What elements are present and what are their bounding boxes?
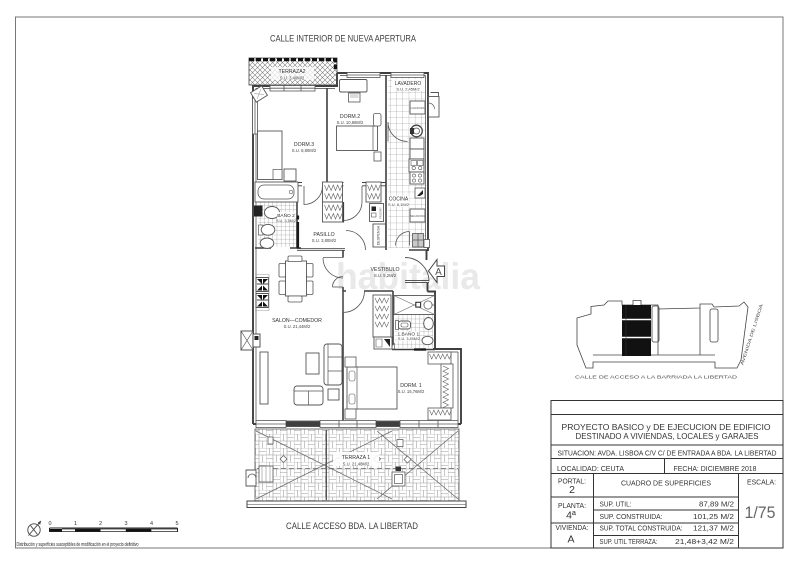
svg-text:AVENIDA DE LISBOA: AVENIDA DE LISBOA — [739, 303, 764, 366]
svg-text:S.U. 6,1M/2: S.U. 6,1M/2 — [388, 202, 410, 207]
svg-text:5: 5 — [175, 521, 178, 527]
svg-text:1/75: 1/75 — [745, 504, 776, 522]
svg-text:SUP. UTIL TERRAZA:: SUP. UTIL TERRAZA: — [600, 537, 658, 546]
svg-text:ESCALA:: ESCALA: — [747, 478, 776, 487]
svg-text:CALLE DE ACCESO A LA BARR: CALLE DE ACCESO A LA BARRIADA LA LIBERTA… — [575, 375, 737, 380]
svg-text:S.U. 21,44M/2: S.U. 21,44M/2 — [284, 324, 311, 329]
svg-text:S.U. 8,80M/2: S.U. 8,80M/2 — [292, 148, 317, 153]
svg-text:21,48+3,42 M/2: 21,48+3,42 M/2 — [675, 537, 734, 546]
svg-text:DESPENSA: DESPENSA — [377, 225, 381, 245]
svg-text:DESTINADO A VIVIENDAS, LOCA: DESTINADO A VIVIENDAS, LOCALES y GARAJES — [576, 431, 759, 441]
svg-text:VIVIENDA:: VIVIENDA: — [556, 523, 589, 532]
svg-text:SUP. UTIL:: SUP. UTIL: — [600, 499, 632, 508]
svg-text:4ª: 4ª — [566, 509, 576, 521]
svg-text:121,37 M/2: 121,37 M/2 — [693, 524, 734, 533]
svg-text:habitalia: habitalia — [336, 256, 480, 297]
svg-text:0: 0 — [48, 521, 51, 527]
svg-text:S.U. 3,5M/2: S.U. 3,5M/2 — [276, 219, 296, 223]
svg-text:A: A — [567, 534, 574, 546]
svg-text:CUADRO DE SUPERFICIES: CUADRO DE SUPERFICIES — [621, 479, 711, 488]
svg-text:4: 4 — [150, 521, 153, 527]
svg-text:CALLE INTERIOR DE NUEVA AP: CALLE INTERIOR DE NUEVA APERTURA — [270, 34, 417, 44]
svg-text:SITUACION: AVDA. LISBOA C/V: SITUACION: AVDA. LISBOA C/V C/ DE ENTRAD… — [558, 450, 777, 457]
svg-text:BAÑO 2: BAÑO 2 — [277, 212, 295, 219]
svg-text:2: 2 — [99, 521, 102, 527]
svg-text:TERRAZA 1: TERRAZA 1 — [342, 455, 370, 461]
svg-text:SUP. TOTAL CONSTRUIDA:: SUP. TOTAL CONSTRUIDA: — [600, 524, 683, 533]
svg-text:101,25 M/2: 101,25 M/2 — [693, 512, 734, 521]
svg-text:CALLE ACCESO BDA. LA LIBER: CALLE ACCESO BDA. LA LIBERTAD — [286, 521, 418, 531]
svg-text:S.U. 21,48M/2: S.U. 21,48M/2 — [343, 462, 370, 467]
svg-text:LOCALIDAD: CEUTA: LOCALIDAD: CEUTA — [557, 464, 625, 473]
svg-text:S.U. 10,86M/2: S.U. 10,86M/2 — [337, 120, 364, 125]
svg-text:S.U. 3,80M/2: S.U. 3,80M/2 — [312, 238, 337, 243]
svg-text:S.U. 2,45M/2: S.U. 2,45M/2 — [396, 87, 420, 92]
svg-text:S.U. 3,45M/2: S.U. 3,45M/2 — [398, 337, 420, 341]
svg-text:1: 1 — [74, 521, 77, 527]
svg-text:3: 3 — [124, 521, 127, 527]
svg-text:LAVADORA: LAVADORA — [411, 106, 425, 110]
svg-text:FRIGORIF.: FRIGORIF. — [380, 207, 383, 220]
svg-text:S.U. 15,76M/2: S.U. 15,76M/2 — [398, 389, 425, 394]
svg-text:87,89 M/2: 87,89 M/2 — [699, 499, 734, 508]
svg-text:2: 2 — [569, 484, 575, 496]
svg-text:SUP. CONSTRUIDA:: SUP. CONSTRUIDA: — [600, 512, 663, 521]
svg-text:FECHA: DICIEMBRE 2018: FECHA: DICIEMBRE 2018 — [674, 464, 757, 473]
svg-text:TERRAZA2: TERRAZA2 — [278, 69, 305, 75]
svg-text:S.U. 5,2M/2: S.U. 5,2M/2 — [374, 273, 397, 278]
svg-text:S.U. 3,40M/2: S.U. 3,40M/2 — [280, 76, 305, 81]
svg-text:SECADORA: SECADORA — [410, 214, 425, 218]
svg-text:Distribución y superficies: Distribución y superficies susceptibles … — [17, 542, 139, 548]
svg-text:A: A — [435, 267, 442, 278]
